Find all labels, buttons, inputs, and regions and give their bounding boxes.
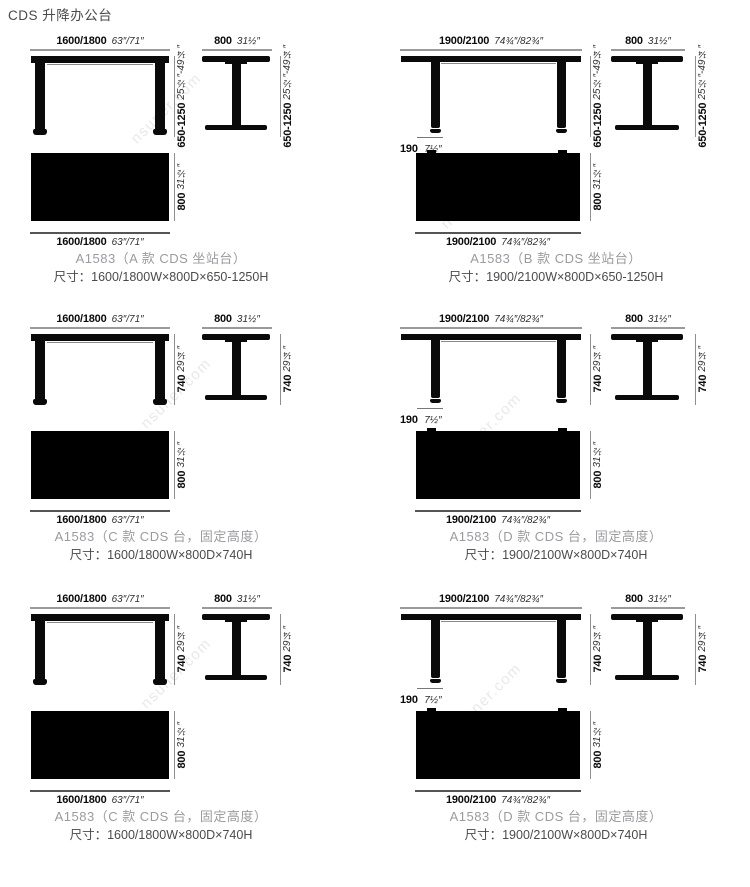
depth-dimension: 800 31½″ [174, 431, 188, 499]
dimension-label: 740 29¼″ [592, 626, 604, 673]
dimension-label: 740 29¼″ [592, 346, 604, 393]
dimension-mm: 800 [214, 35, 232, 47]
dimension-label: 800 31½″ [592, 442, 604, 489]
dimension-inch: 25½″-49¼″ [697, 45, 708, 100]
dimension-inch: 63″/71″ [110, 515, 144, 526]
top-width-dimension: 1600/1800 63″/71″ [30, 790, 170, 807]
dimension-mm: 1600/1800 [56, 313, 106, 325]
dimension-label: 800 31½″ [202, 313, 272, 326]
dimension-inch: 63″/71″ [110, 594, 144, 605]
top-view-surface [416, 153, 580, 221]
side-view-foot [205, 675, 267, 680]
side-view-column [643, 620, 652, 675]
dimension-line [400, 327, 582, 329]
dimension-mm: 190 [400, 414, 418, 426]
front-view-tabletop [31, 56, 169, 63]
dimension-inch: 63″/71″ [110, 795, 144, 806]
front-view-right-leg [155, 621, 165, 679]
dimension-label: 800 31½″ [611, 593, 685, 606]
dimension-inch: 7½″ [422, 695, 441, 706]
side-width-dimension: 800 31½″ [202, 313, 272, 329]
dimension-inch: 31½″ [176, 722, 187, 748]
dimension-line [611, 49, 685, 51]
dimension-line [590, 153, 591, 221]
side-view-column [643, 340, 652, 395]
dimension-mm: 800 [176, 750, 188, 768]
dimension-inch: 7½″ [422, 415, 441, 426]
dimension-label: 800 31½″ [592, 722, 604, 769]
side-view-column [643, 62, 652, 125]
dimension-mm: 740 [592, 375, 604, 393]
model-caption: A1583（D 款 CDS 台，固定高度） [425, 526, 687, 545]
dimension-mm: 1900/2100 [446, 514, 496, 526]
model-caption: A1583（B 款 CDS 坐站台） [425, 248, 687, 267]
depth-dimension: 800 31½″ [590, 711, 604, 779]
front-view-tabletop [31, 334, 169, 341]
front-view-left-foot [430, 679, 441, 683]
dimension-mm: 800 [592, 750, 604, 768]
front-view-right-foot [153, 399, 167, 405]
panel-e-fixed-1600: 1600/1800 63″/71″ 740 29¼″ 800 31½″ 740 … [30, 593, 342, 845]
front-view-tabletop [401, 56, 581, 62]
dimension-inch: 29¼″ [282, 626, 293, 652]
dimension-inch: 74¾″/82¾″ [499, 237, 550, 248]
dimension-line [174, 431, 175, 499]
dimension-inch: 63″/71″ [110, 36, 144, 47]
depth-dimension: 800 31½″ [590, 431, 604, 499]
dimension-mm: 1900/2100 [439, 593, 489, 605]
dimension-line [695, 614, 696, 685]
front-view-left-foot [430, 129, 441, 133]
dimension-inch: 74¾″/82¾″ [499, 795, 550, 806]
dimension-inch: 29¼″ [592, 626, 603, 652]
dimension-line [611, 607, 685, 609]
dimension-label: 800 31½″ [176, 164, 188, 211]
dimension-label: 650-1250 25½″-49¼″ [592, 45, 604, 148]
side-view-column [232, 340, 241, 395]
dimension-mm: 1900/2100 [439, 313, 489, 325]
front-view-right-leg [155, 63, 165, 129]
side-view-foot [205, 395, 267, 400]
side-view-foot [615, 125, 679, 130]
dimension-mm: 1600/1800 [56, 593, 106, 605]
dimension-line [417, 137, 443, 138]
dimension-inch: 29¼″ [592, 346, 603, 372]
top-width-dimension: 1900/2100 74¾″/82¾″ [415, 510, 581, 527]
size-spec: 尺寸：1900/2100W×800D×740H [425, 544, 687, 563]
dimension-inch: 31½″ [235, 594, 260, 605]
dimension-inch: 74¾″/82¾″ [492, 594, 543, 605]
size-spec: 尺寸：1600/1800W×800D×740H [30, 544, 292, 563]
front-width-dimension: 1600/1800 63″/71″ [30, 593, 170, 609]
front-width-dimension: 1900/2100 74¾″/82¾″ [400, 313, 582, 329]
front-view-right-foot [556, 399, 567, 403]
dimension-label: 650-1250 25½″-49¼″ [176, 45, 188, 148]
dimension-line [280, 334, 281, 405]
dimension-inch: 29¼″ [282, 346, 293, 372]
side-height-dimension: 740 29¼″ [695, 334, 709, 405]
dimension-line [590, 711, 591, 779]
front-view-right-leg [155, 341, 165, 399]
dimension-line [30, 327, 170, 329]
size-spec: 尺寸：1900/2100W×800D×650-1250H [425, 266, 687, 285]
side-height-dimension: 650-1250 25½″-49¼″ [280, 56, 294, 137]
dimension-mm: 650-1250 [592, 103, 604, 148]
dimension-line [695, 56, 696, 137]
dimension-mm: 800 [625, 35, 643, 47]
front-view-right-foot [153, 679, 167, 685]
depth-dimension: 800 31½″ [590, 153, 604, 221]
side-width-dimension: 800 31½″ [202, 35, 272, 51]
dimension-line [30, 790, 170, 792]
dimension-line [30, 49, 170, 51]
dimension-mm: 740 [697, 375, 709, 393]
dimension-mm: 650-1250 [282, 103, 294, 148]
dimension-line [174, 614, 175, 685]
dimension-mm: 800 [176, 192, 188, 210]
dimension-label: 740 29¼″ [697, 346, 709, 393]
spec-sheet: { "page": { "title": "CDS 升降办公台", "water… [0, 0, 750, 887]
front-view-right-foot [556, 679, 567, 683]
front-view-right-leg [557, 62, 566, 128]
panel-d-fixed-1900: 1900/2100 74¾″/82¾″ 190 7½″ 740 29¼″ 800… [400, 313, 712, 565]
side-view-column [232, 62, 241, 125]
side-view-column [232, 620, 241, 675]
front-view-left-leg [35, 63, 45, 129]
panel-b-sit-stand-1900: 1900/2100 74¾″/82¾″ 190 7½″ 650-1250 25½… [400, 35, 712, 287]
dimension-label: 1900/2100 74¾″/82¾″ [400, 593, 582, 606]
dimension-mm: 740 [697, 655, 709, 673]
dimension-inch: 31½″ [235, 314, 260, 325]
front-view-frame-rail [47, 64, 153, 65]
front-height-dimension: 740 29¼″ [590, 334, 604, 405]
side-height-dimension: 740 29¼″ [695, 614, 709, 685]
depth-dimension: 800 31½″ [174, 153, 188, 221]
dimension-line [280, 614, 281, 685]
dimension-inch: 29¼″ [697, 626, 708, 652]
dimension-mm: 1600/1800 [56, 35, 106, 47]
top-view-surface [31, 153, 169, 221]
dimension-label: 1900/2100 74¾″/82¾″ [400, 313, 582, 326]
dimension-line [590, 56, 591, 137]
dimension-inch: 31½″ [235, 36, 260, 47]
top-width-dimension: 1900/2100 74¾″/82¾″ [415, 790, 581, 807]
dimension-line [611, 327, 685, 329]
panel-c-fixed-1600: 1600/1800 63″/71″ 740 29¼″ 800 31½″ 740 … [30, 313, 342, 565]
front-view-left-leg [35, 341, 45, 399]
front-view-left-leg [431, 340, 440, 398]
dimension-label: 1600/1800 63″/71″ [30, 593, 170, 606]
front-view-tabletop [401, 614, 581, 620]
front-width-dimension: 1900/2100 74¾″/82¾″ [400, 35, 582, 51]
side-height-dimension: 740 29¼″ [280, 334, 294, 405]
front-view-frame-rail [47, 622, 153, 623]
dimension-label: 800 31½″ [202, 593, 272, 606]
dimension-label: 190 7½″ [400, 410, 442, 428]
dimension-line [415, 232, 581, 234]
front-view-right-leg [557, 340, 566, 398]
front-height-dimension: 740 29¼″ [174, 614, 188, 685]
dimension-mm: 800 [592, 470, 604, 488]
side-width-dimension: 800 31½″ [611, 313, 685, 329]
dimension-mm: 800 [214, 593, 232, 605]
dimension-label: 800 31½″ [611, 35, 685, 48]
dimension-inch: 63″/71″ [110, 314, 144, 325]
dimension-mm: 190 [400, 694, 418, 706]
dimension-inch: 25½″-49¼″ [176, 45, 187, 100]
dimension-inch: 29¼″ [176, 346, 187, 372]
front-width-dimension: 1900/2100 74¾″/82¾″ [400, 593, 582, 609]
dimension-label: 800 31½″ [611, 313, 685, 326]
model-caption: A1583（A 款 CDS 坐站台） [30, 248, 292, 267]
side-height-dimension: 650-1250 25½″-49¼″ [695, 56, 709, 137]
side-width-dimension: 800 31½″ [611, 593, 685, 609]
dimension-line [590, 614, 591, 685]
page-title: CDS 升降办公台 [8, 4, 112, 24]
size-spec: 尺寸：1600/1800W×800D×650-1250H [30, 266, 292, 285]
front-view-left-leg [431, 62, 440, 128]
dimension-label: 740 29¼″ [282, 346, 294, 393]
dimension-line [202, 49, 272, 51]
dimension-inch: 63″/71″ [110, 237, 144, 248]
dimension-mm: 740 [282, 375, 294, 393]
dimension-inch: 31½″ [592, 442, 603, 468]
size-spec: 尺寸：1900/2100W×800D×740H [425, 824, 687, 843]
dimension-label: 1900/2100 74¾″/82¾″ [400, 35, 582, 48]
dimension-mm: 800 [625, 593, 643, 605]
dimension-line [417, 688, 443, 689]
dimension-line [400, 49, 582, 51]
overhang-dimension: 190 7½″ [400, 408, 460, 424]
dimension-inch: 31½″ [592, 164, 603, 190]
dimension-mm: 740 [176, 375, 188, 393]
dimension-inch: 29¼″ [176, 626, 187, 652]
front-view-left-foot [33, 129, 47, 135]
front-height-dimension: 650-1250 25½″-49¼″ [590, 56, 604, 137]
dimension-label: 800 31½″ [202, 35, 272, 48]
dimension-inch: 25½″-49¼″ [592, 45, 603, 100]
dimension-mm: 800 [592, 192, 604, 210]
dimension-inch: 31½″ [176, 164, 187, 190]
front-view-right-foot [556, 129, 567, 133]
model-caption: A1583（C 款 CDS 台，固定高度） [30, 526, 292, 545]
dimension-label: 740 29¼″ [282, 626, 294, 673]
dimension-mm: 1900/2100 [446, 794, 496, 806]
dimension-line [30, 510, 170, 512]
side-width-dimension: 800 31½″ [611, 35, 685, 51]
front-view-left-foot [33, 679, 47, 685]
dimension-inch: 29¼″ [697, 346, 708, 372]
side-view-foot [615, 675, 679, 680]
front-view-right-leg [557, 620, 566, 678]
dimension-mm: 650-1250 [176, 103, 188, 148]
dimension-mm: 740 [282, 655, 294, 673]
front-height-dimension: 650-1250 25½″-49¼″ [174, 56, 188, 137]
dimension-mm: 1900/2100 [446, 236, 496, 248]
dimension-mm: 1600/1800 [56, 794, 106, 806]
dimension-label: 740 29¼″ [176, 626, 188, 673]
dimension-label: 190 7½″ [400, 690, 442, 708]
dimension-mm: 650-1250 [697, 103, 709, 148]
dimension-label: 800 31½″ [592, 164, 604, 211]
dimension-line [415, 510, 581, 512]
dimension-mm: 1900/2100 [439, 35, 489, 47]
top-view-surface [31, 711, 169, 779]
dimension-label: 650-1250 25½″-49¼″ [697, 45, 709, 148]
panel-a-sit-stand-1600: 1600/1800 63″/71″ 650-1250 25½″-49¼″ 800… [30, 35, 342, 287]
model-caption: A1583（C 款 CDS 台，固定高度） [30, 806, 292, 825]
front-height-dimension: 740 29¼″ [590, 614, 604, 685]
front-view-right-foot [153, 129, 167, 135]
dimension-line [174, 711, 175, 779]
top-view-surface [416, 711, 580, 779]
dimension-inch: 74¾″/82¾″ [499, 515, 550, 526]
dimension-line [417, 408, 443, 409]
dimension-inch: 31½″ [646, 36, 671, 47]
dimension-inch: 74¾″/82¾″ [492, 36, 543, 47]
dimension-line [174, 153, 175, 221]
front-view-frame-rail [47, 342, 153, 343]
front-view-frame-rail [441, 63, 556, 64]
dimension-mm: 800 [176, 470, 188, 488]
dimension-line [202, 327, 272, 329]
depth-dimension: 800 31½″ [174, 711, 188, 779]
dimension-label: 740 29¼″ [697, 626, 709, 673]
front-view-tabletop [401, 334, 581, 340]
dimension-line [590, 431, 591, 499]
dimension-mm: 1600/1800 [56, 236, 106, 248]
dimension-inch: 31½″ [592, 722, 603, 748]
dimension-mm: 1600/1800 [56, 514, 106, 526]
front-view-left-leg [431, 620, 440, 678]
top-width-dimension: 1600/1800 63″/71″ [30, 232, 170, 249]
front-height-dimension: 740 29¼″ [174, 334, 188, 405]
dimension-line [400, 607, 582, 609]
front-view-tabletop [31, 614, 169, 621]
dimension-line [174, 56, 175, 137]
side-height-dimension: 740 29¼″ [280, 614, 294, 685]
dimension-label: 650-1250 25½″-49¼″ [282, 45, 294, 148]
dimension-inch: 25½″-49¼″ [282, 45, 293, 100]
dimension-line [202, 607, 272, 609]
dimension-label: 740 29¼″ [176, 346, 188, 393]
front-view-left-foot [33, 399, 47, 405]
side-view-foot [615, 395, 679, 400]
front-view-left-leg [35, 621, 45, 679]
dimension-mm: 800 [214, 313, 232, 325]
dimension-label: 800 31½″ [176, 722, 188, 769]
dimension-line [590, 334, 591, 405]
dimension-inch: 74¾″/82¾″ [492, 314, 543, 325]
dimension-line [695, 334, 696, 405]
dimension-line [30, 607, 170, 609]
top-width-dimension: 1600/1800 63″/71″ [30, 510, 170, 527]
front-view-left-foot [430, 399, 441, 403]
front-width-dimension: 1600/1800 63″/71″ [30, 313, 170, 329]
front-width-dimension: 1600/1800 63″/71″ [30, 35, 170, 51]
dimension-mm: 800 [625, 313, 643, 325]
dimension-label: 1600/1800 63″/71″ [30, 35, 170, 48]
dimension-inch: 31½″ [176, 442, 187, 468]
dimension-line [174, 334, 175, 405]
model-caption: A1583（D 款 CDS 台，固定高度） [425, 806, 687, 825]
front-view-frame-rail [441, 621, 556, 622]
dimension-label: 800 31½″ [176, 442, 188, 489]
dimension-mm: 740 [592, 655, 604, 673]
top-width-dimension: 1900/2100 74¾″/82¾″ [415, 232, 581, 249]
front-view-frame-rail [441, 341, 556, 342]
panel-f-fixed-1900: 1900/2100 74¾″/82¾″ 190 7½″ 740 29¼″ 800… [400, 593, 712, 845]
dimension-label: 1600/1800 63″/71″ [30, 313, 170, 326]
top-view-surface [416, 431, 580, 499]
size-spec: 尺寸：1600/1800W×800D×740H [30, 824, 292, 843]
dimension-inch: 31½″ [646, 314, 671, 325]
dimension-mm: 740 [176, 655, 188, 673]
dimension-inch: 31½″ [646, 594, 671, 605]
dimension-line [280, 56, 281, 137]
dimension-line [415, 790, 581, 792]
top-view-surface [31, 431, 169, 499]
side-width-dimension: 800 31½″ [202, 593, 272, 609]
side-view-foot [205, 125, 267, 130]
dimension-line [30, 232, 170, 234]
overhang-dimension: 190 7½″ [400, 688, 460, 704]
